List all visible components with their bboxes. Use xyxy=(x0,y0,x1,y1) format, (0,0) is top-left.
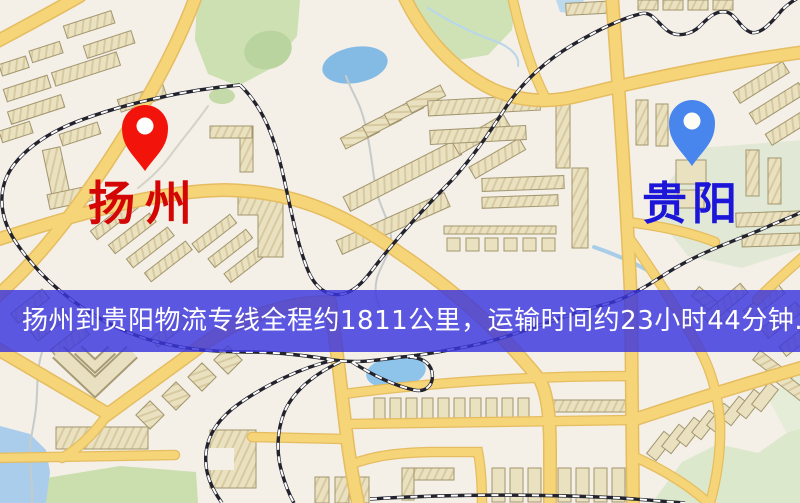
route-info-text: 扬州到贵阳物流专线全程约1811公里，运输时间约23小时44分钟. xyxy=(22,306,800,336)
route-info-banner: 扬州到贵阳物流专线全程约1811公里，运输时间约23小时44分钟. xyxy=(0,290,800,352)
map-canvas: 扬州 贵阳 xyxy=(0,0,800,503)
origin-city-label: 扬州 xyxy=(88,177,202,232)
origin-pin-hole xyxy=(137,118,154,135)
map-screenshot: 扬州 贵阳 扬州到贵阳物流专线全程约1811公里，运输时间约23小时44分钟. xyxy=(0,0,800,503)
destination-pin-hole xyxy=(684,113,701,130)
destination-city-label: 贵阳 xyxy=(642,177,742,230)
